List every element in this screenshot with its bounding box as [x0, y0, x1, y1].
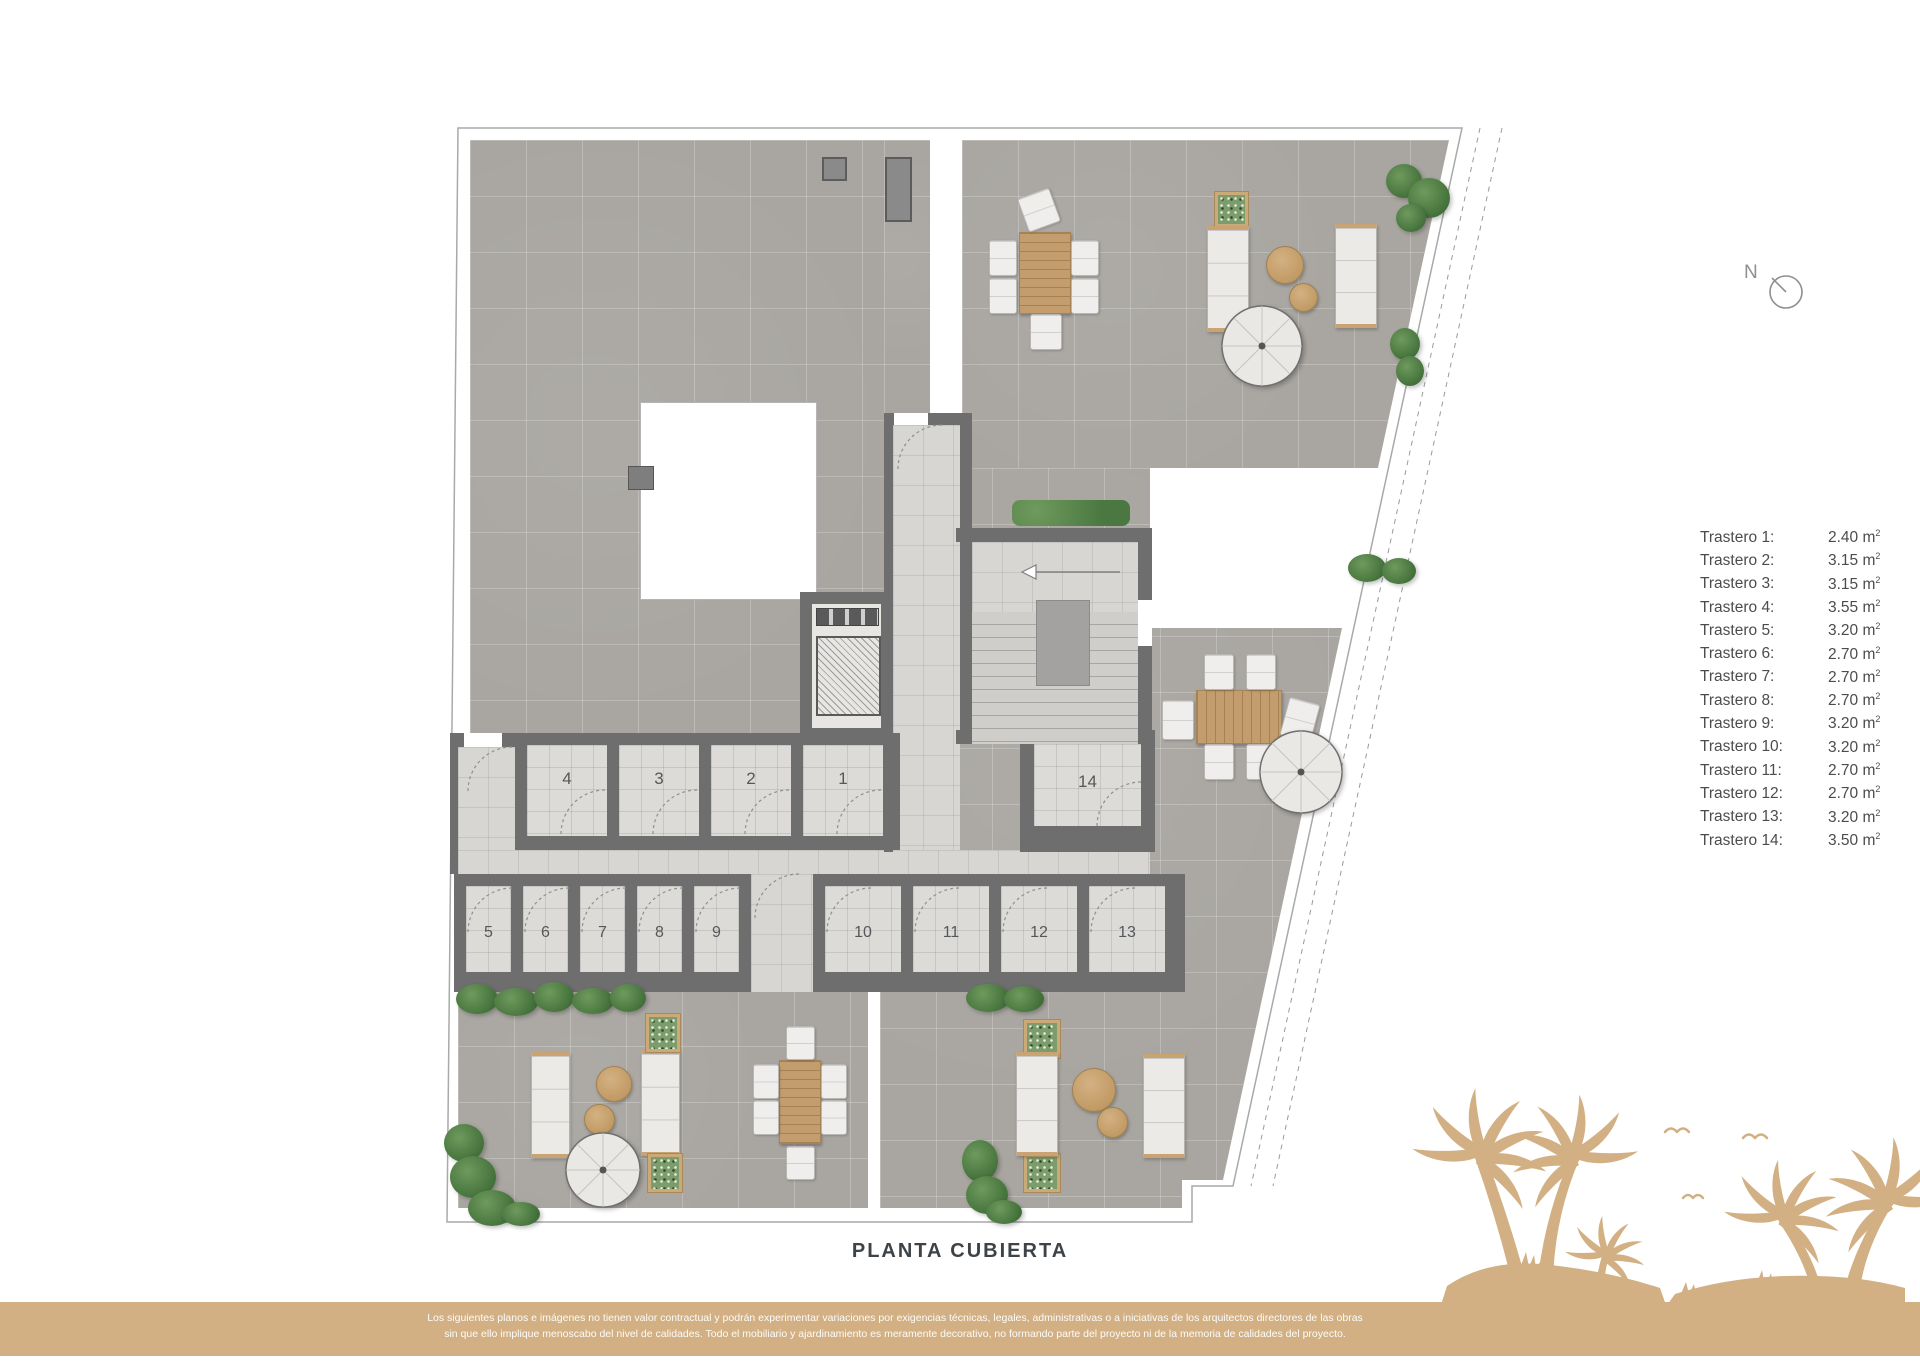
storage-legend: Trastero 1:2.40 m2Trastero 2:3.15 m2Tras… [1700, 526, 1910, 852]
legend-area-value: 3.20 m2 [1828, 738, 1880, 757]
legend-room-label: Trastero 5: [1700, 622, 1828, 640]
legend-room-label: Trastero 6: [1700, 645, 1828, 663]
legend-room-label: Trastero 13: [1700, 808, 1828, 826]
legend-row: Trastero 6:2.70 m2 [1700, 642, 1910, 665]
legend-area-value: 2.70 m2 [1828, 784, 1880, 803]
plan-title: PLANTA CUBIERTA [710, 1240, 1210, 1263]
legend-area-value: 3.15 m2 [1828, 575, 1880, 594]
legend-area-value: 3.50 m2 [1828, 831, 1880, 850]
legend-area-value: 3.55 m2 [1828, 598, 1880, 617]
north-compass-icon [1770, 276, 1802, 308]
disclaimer-line-2: sin que ello implique menoscabo del nive… [300, 1326, 1490, 1342]
legend-row: Trastero 3:3.15 m2 [1700, 573, 1910, 596]
legend-room-label: Trastero 7: [1700, 668, 1828, 686]
legend-area-value: 3.20 m2 [1828, 621, 1880, 640]
legend-room-label: Trastero 12: [1700, 785, 1828, 803]
legend-row: Trastero 13:3.20 m2 [1700, 806, 1910, 829]
footer-disclaimer-bar: Los siguientes planos e imágenes no tien… [0, 1302, 1920, 1356]
legend-row: Trastero 10:3.20 m2 [1700, 736, 1910, 759]
legend-row: Trastero 14:3.50 m2 [1700, 829, 1910, 852]
legend-area-value: 3.15 m2 [1828, 551, 1880, 570]
north-label: N [1744, 262, 1758, 284]
disclaimer-text: Los siguientes planos e imágenes no tien… [300, 1310, 1490, 1342]
legend-row: Trastero 8:2.70 m2 [1700, 689, 1910, 712]
floor-plan-page: 4 3 2 1 14 5 6 7 8 9 10 11 12 13 [0, 0, 1920, 1370]
legend-room-label: Trastero 10: [1700, 738, 1828, 756]
legend-room-label: Trastero 4: [1700, 599, 1828, 617]
legend-row: Trastero 11:2.70 m2 [1700, 759, 1910, 782]
legend-room-label: Trastero 14: [1700, 832, 1828, 850]
legend-row: Trastero 5:3.20 m2 [1700, 619, 1910, 642]
legend-room-label: Trastero 11: [1700, 762, 1828, 780]
legend-room-label: Trastero 3: [1700, 575, 1828, 593]
legend-area-value: 2.70 m2 [1828, 668, 1880, 687]
legend-area-value: 3.20 m2 [1828, 714, 1880, 733]
legend-room-label: Trastero 1: [1700, 529, 1828, 547]
stair-direction-arrow [1022, 565, 1120, 579]
legend-room-label: Trastero 8: [1700, 692, 1828, 710]
legend-row: Trastero 12:2.70 m2 [1700, 782, 1910, 805]
legend-row: Trastero 7:2.70 m2 [1700, 666, 1910, 689]
legend-row: Trastero 2:3.15 m2 [1700, 549, 1910, 572]
disclaimer-line-1: Los siguientes planos e imágenes no tien… [300, 1310, 1490, 1326]
legend-area-value: 2.70 m2 [1828, 645, 1880, 664]
legend-area-value: 2.70 m2 [1828, 761, 1880, 780]
legend-row: Trastero 9:3.20 m2 [1700, 712, 1910, 735]
legend-area-value: 2.40 m2 [1828, 528, 1880, 547]
legend-room-label: Trastero 9: [1700, 715, 1828, 733]
legend-area-value: 2.70 m2 [1828, 691, 1880, 710]
legend-room-label: Trastero 2: [1700, 552, 1828, 570]
legend-area-value: 3.20 m2 [1828, 808, 1880, 827]
palm-trees-decoration [1425, 1050, 1920, 1308]
legend-row: Trastero 4:3.55 m2 [1700, 596, 1910, 619]
legend-row: Trastero 1:2.40 m2 [1700, 526, 1910, 549]
